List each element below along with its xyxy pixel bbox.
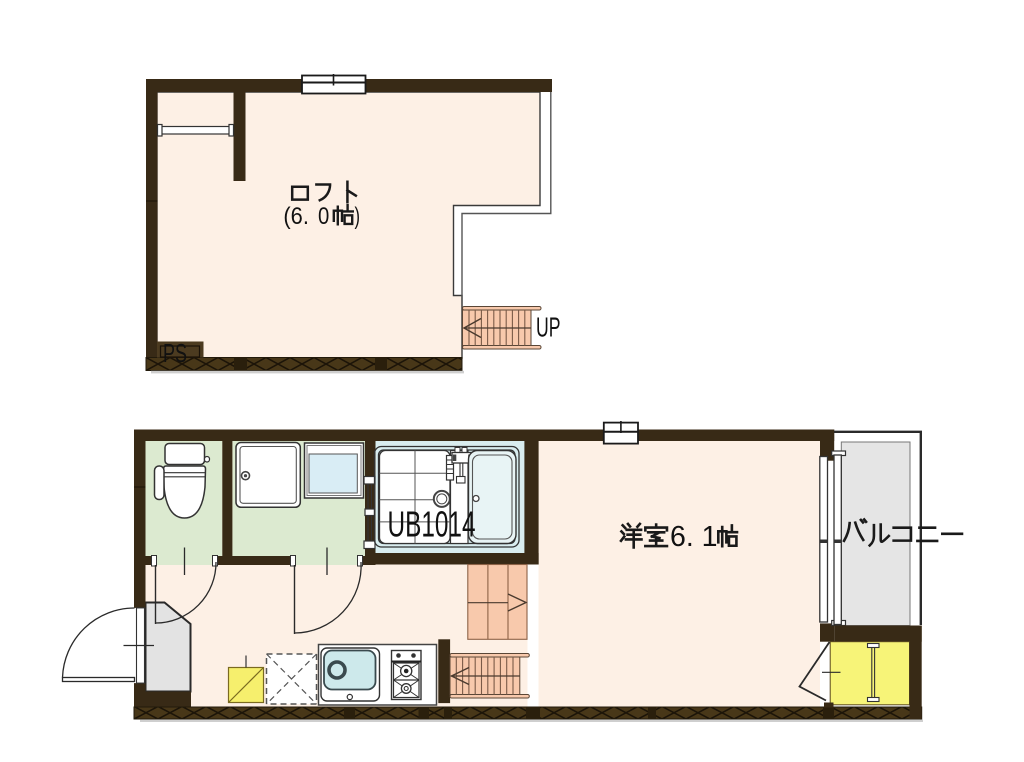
- svg-text:): ): [355, 203, 361, 230]
- svg-text:0: 0: [318, 203, 329, 230]
- svg-text:6. 1: 6. 1: [670, 521, 718, 553]
- svg-text:UB1014: UB1014: [388, 504, 476, 545]
- svg-text:PS: PS: [163, 338, 187, 368]
- svg-text:(6.: (6.: [283, 203, 309, 230]
- svg-text:UP: UP: [536, 312, 561, 343]
